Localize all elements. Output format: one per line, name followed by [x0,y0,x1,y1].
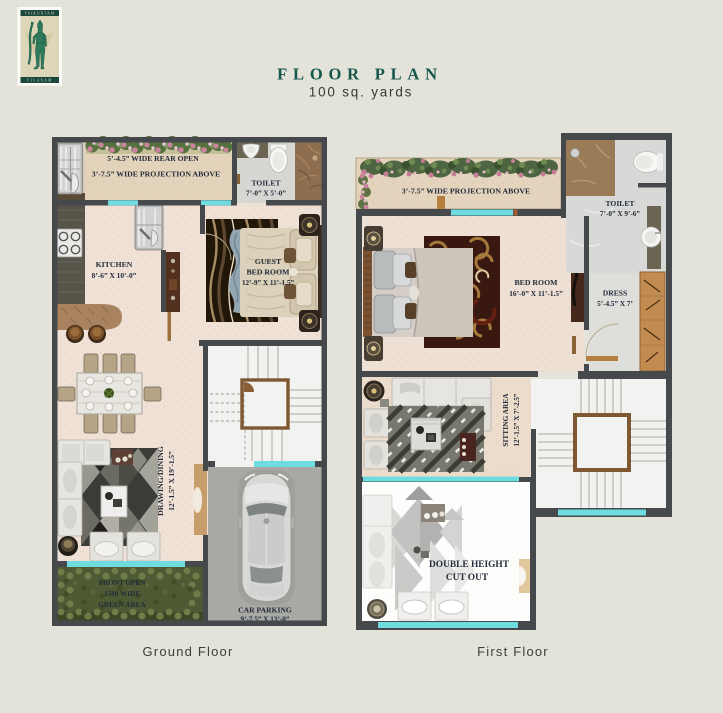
svg-text:5’-4.5” WIDE REAR OPEN: 5’-4.5” WIDE REAR OPEN [107,154,199,163]
svg-text:12’-1.5” X 7’-2.5”: 12’-1.5” X 7’-2.5” [513,393,521,446]
svg-text:SITTING AREA: SITTING AREA [501,393,510,447]
svg-text:1500 WIDE: 1500 WIDE [104,590,140,598]
svg-text:BED ROOM: BED ROOM [246,268,290,277]
svg-text:First Floor: First Floor [477,644,549,659]
svg-text:16’-0” X 11’-1.5”: 16’-0” X 11’-1.5” [509,289,563,298]
svg-text:FRONT OPEN: FRONT OPEN [99,579,147,587]
svg-text:DOUBLE HEIGHT: DOUBLE HEIGHT [429,560,510,570]
svg-text:100 sq. yards: 100 sq. yards [309,85,413,100]
svg-text:GREEN AREA: GREEN AREA [98,601,146,609]
svg-text:3’-7.5” WIDE PROJECTION ABOVE: 3’-7.5” WIDE PROJECTION ABOVE [402,187,531,196]
svg-text:VAIKUNTAM: VAIKUNTAM [24,12,54,16]
svg-text:7’-0” X 9’-6”: 7’-0” X 9’-6” [600,210,640,218]
svg-text:CUT OUT: CUT OUT [446,573,489,583]
svg-text:CAR PARKING: CAR PARKING [238,606,292,615]
svg-text:Ground Floor: Ground Floor [143,644,234,659]
svg-text:BED ROOM: BED ROOM [514,278,558,287]
svg-text:12’-9” X 11’-1.5”: 12’-9” X 11’-1.5” [242,279,295,287]
svg-text:3’-7.5” WIDE PROJECTION ABOVE: 3’-7.5” WIDE PROJECTION ABOVE [92,170,221,179]
svg-text:KITCHEN: KITCHEN [96,260,133,269]
svg-text:8’-6” X 10’-0”: 8’-6” X 10’-0” [92,271,137,280]
svg-text:GUEST: GUEST [255,257,282,266]
svg-text:TOILET: TOILET [252,179,281,188]
svg-text:DRESS: DRESS [603,289,627,298]
svg-text:12’-1.5” X 19’-1.5”: 12’-1.5” X 19’-1.5” [167,451,176,511]
svg-text:TOILET: TOILET [606,199,635,208]
svg-text:FLOOR PLAN: FLOOR PLAN [277,65,443,84]
svg-text:VILASAM: VILASAM [27,79,53,83]
svg-text:7’-0” X 5’-0”: 7’-0” X 5’-0” [246,190,286,198]
svg-text:5’-4.5” X 7’: 5’-4.5” X 7’ [597,300,633,308]
